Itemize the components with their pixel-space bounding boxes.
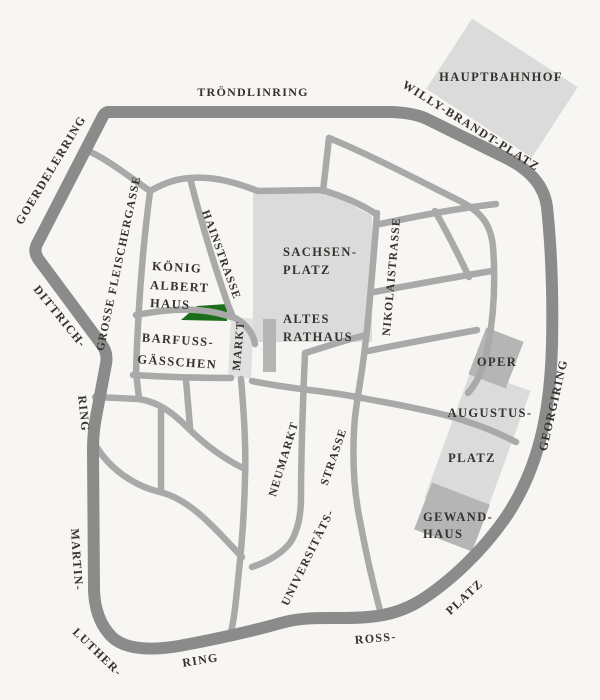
label-altes-rathaus-line1: ALTES	[283, 312, 330, 326]
label-gewandhaus-line1: GEWAND-	[423, 510, 493, 524]
label-luther: LUTHER-	[70, 625, 126, 679]
city-map: TRÖNDLINRING GOERDELERRING WILLY-BRANDT-…	[0, 0, 600, 700]
altes-rathaus-building	[263, 319, 276, 372]
street-petersstrasse	[231, 379, 245, 632]
label-gewandhaus-line2: HAUS	[423, 527, 463, 541]
street-north-spur	[323, 138, 329, 191]
label-barfussgaesschen: BARFUSS- GÄSSCHEN	[137, 330, 219, 371]
label-troendlinring: TRÖNDLINRING	[197, 85, 309, 99]
label-barfussgaesschen-line2: GÄSSCHEN	[137, 352, 218, 372]
label-koenig-albert-haus-line3: HAUS	[150, 296, 191, 312]
label-koenig-albert-haus-line2: ALBERT	[150, 278, 210, 295]
label-sachsenplatz-line1: SACHSEN-	[283, 245, 357, 259]
label-georgiring: GEORGIRING	[536, 358, 571, 452]
street-thomasgasse	[133, 375, 231, 378]
label-strasse: STRASSE	[319, 427, 350, 487]
street-top-connector-east	[150, 178, 322, 191]
label-luther-ring: RING	[181, 650, 219, 670]
street-grosse-fleischergasse	[136, 192, 150, 398]
label-augustusplatz-line2: PLATZ	[448, 451, 496, 465]
map-canvas: TRÖNDLINRING GOERDELERRING WILLY-BRANDT-…	[0, 0, 600, 700]
label-neumarkt: NEUMARKT	[267, 420, 301, 498]
label-ross: ROSS-	[354, 629, 397, 647]
label-koenig-albert-haus: KÖNIG ALBERT HAUS	[149, 259, 211, 313]
street-ritter-diagonal	[435, 211, 469, 277]
label-hauptbahnhof: HAUPTBAHNHOF	[439, 70, 563, 84]
street-southwest-diagonal-2	[96, 446, 242, 557]
label-dittrich-ring: RING	[75, 395, 93, 433]
label-nikolaistrasse: NIKOLAISTRASSE	[381, 217, 403, 337]
label-koenig-albert-haus-line1: KÖNIG	[152, 259, 203, 276]
street-klostergasse-connector	[186, 380, 190, 427]
label-oper: OPER	[477, 355, 517, 369]
label-martin: MARTIN-	[68, 528, 86, 592]
label-altes-rathaus-line2: RATHAUS	[283, 330, 353, 344]
street-hainstrasse	[190, 178, 233, 317]
label-barfussgaesschen-line1: BARFUSS-	[141, 330, 214, 349]
street-southwest-diagonal-1	[139, 399, 245, 469]
label-universitaets: UNIVERSITÄTS-	[278, 507, 337, 608]
label-augustusplatz-line1: AUGUSTUS-	[448, 406, 533, 420]
label-sachsenplatz-line2: PLATZ	[283, 263, 331, 277]
